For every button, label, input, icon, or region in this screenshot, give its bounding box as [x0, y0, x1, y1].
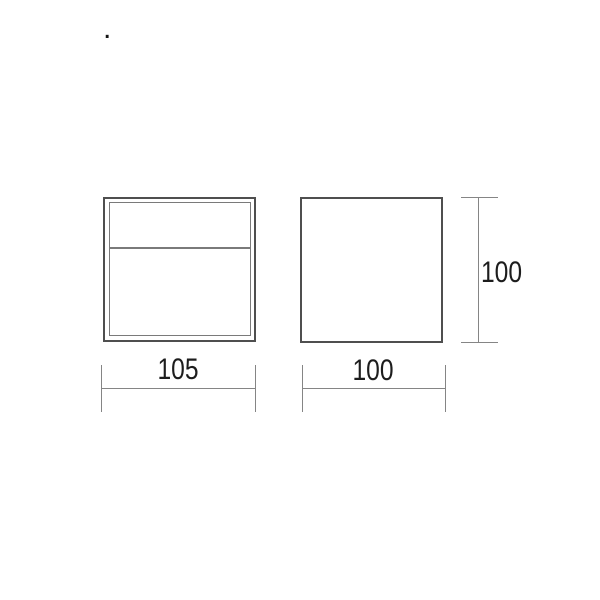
left-view-inner-panel: [109, 202, 251, 336]
stray-dot-mark: .: [103, 14, 111, 44]
left-width-dimension-line: [101, 388, 256, 389]
right-view-outline: [300, 197, 443, 343]
height-dimension-line: [478, 197, 479, 343]
height-dimension-bottom-tick: [461, 342, 498, 343]
left-width-dimension-label: 105: [157, 355, 200, 385]
technical-drawing-canvas: . 100 105 100: [0, 0, 600, 600]
height-dimension-label: 100: [481, 258, 522, 288]
right-width-dimension-line: [302, 388, 446, 389]
right-width-dimension-label: 100: [352, 356, 395, 386]
height-dimension-top-tick: [461, 197, 498, 198]
left-view-divider-line: [109, 247, 251, 249]
